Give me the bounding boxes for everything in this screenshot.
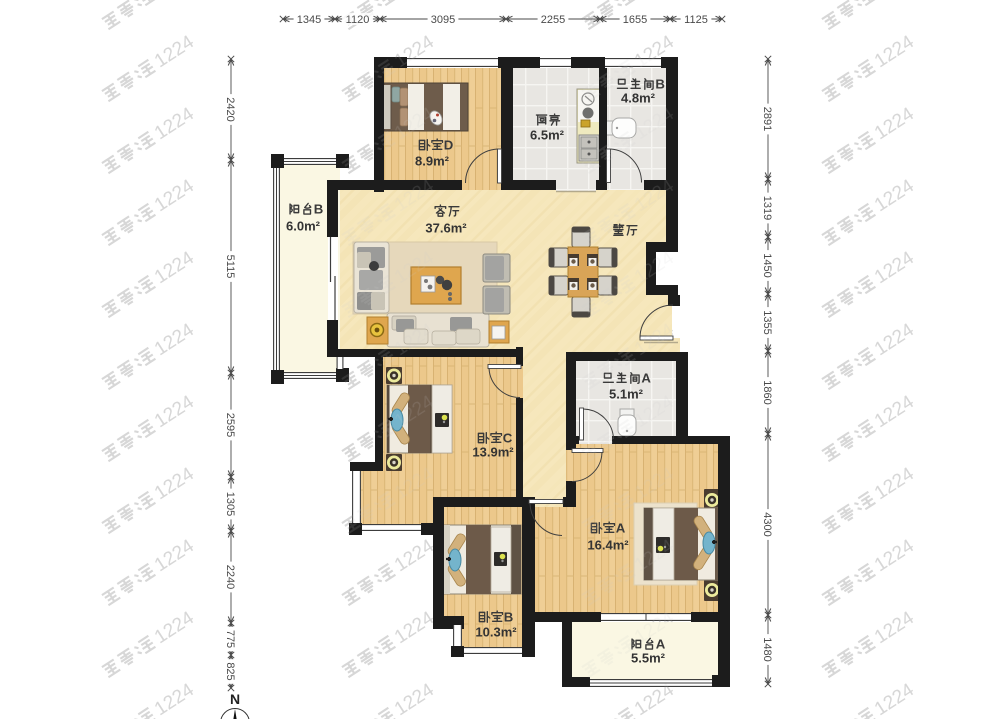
svg-text:1450: 1450 [761, 253, 773, 277]
svg-text:16.4m²: 16.4m² [587, 538, 629, 553]
svg-text:A: A [641, 371, 651, 386]
svg-text:1319: 1319 [761, 196, 773, 220]
svg-text:2891: 2891 [761, 107, 773, 131]
svg-text:5.5m²: 5.5m² [631, 651, 666, 666]
svg-text:37.6m²: 37.6m² [425, 221, 467, 236]
svg-text:825: 825 [224, 662, 236, 680]
svg-text:3095: 3095 [431, 14, 455, 26]
svg-text:6.0m²: 6.0m² [286, 219, 321, 234]
svg-text:2595: 2595 [224, 413, 236, 437]
svg-text:1860: 1860 [761, 380, 773, 404]
svg-text:4.8m²: 4.8m² [621, 91, 656, 106]
svg-text:10.3m²: 10.3m² [475, 625, 517, 640]
svg-text:B: B [314, 202, 324, 217]
svg-text:2240: 2240 [224, 565, 236, 589]
svg-text:B: B [655, 77, 665, 92]
svg-text:1125: 1125 [684, 14, 708, 26]
svg-text:2420: 2420 [224, 97, 236, 121]
svg-text:A: A [616, 521, 626, 536]
svg-text:N: N [230, 691, 240, 707]
svg-text:1655: 1655 [623, 14, 647, 26]
svg-text:13.9m²: 13.9m² [472, 445, 514, 460]
svg-text:1305: 1305 [224, 492, 236, 516]
svg-text:B: B [504, 610, 514, 625]
svg-text:5.1m²: 5.1m² [609, 387, 644, 402]
svg-text:1355: 1355 [761, 310, 773, 334]
svg-text:1480: 1480 [761, 637, 773, 661]
svg-text:4300: 4300 [761, 512, 773, 536]
svg-text:A: A [656, 637, 666, 652]
svg-text:1345: 1345 [297, 14, 321, 26]
svg-text:5115: 5115 [224, 255, 236, 279]
svg-text:D: D [444, 138, 454, 153]
svg-text:8.9m²: 8.9m² [415, 154, 450, 169]
svg-text:6.5m²: 6.5m² [530, 128, 565, 143]
svg-text:2255: 2255 [541, 14, 565, 26]
svg-text:C: C [503, 431, 513, 446]
svg-text:775: 775 [224, 630, 236, 648]
